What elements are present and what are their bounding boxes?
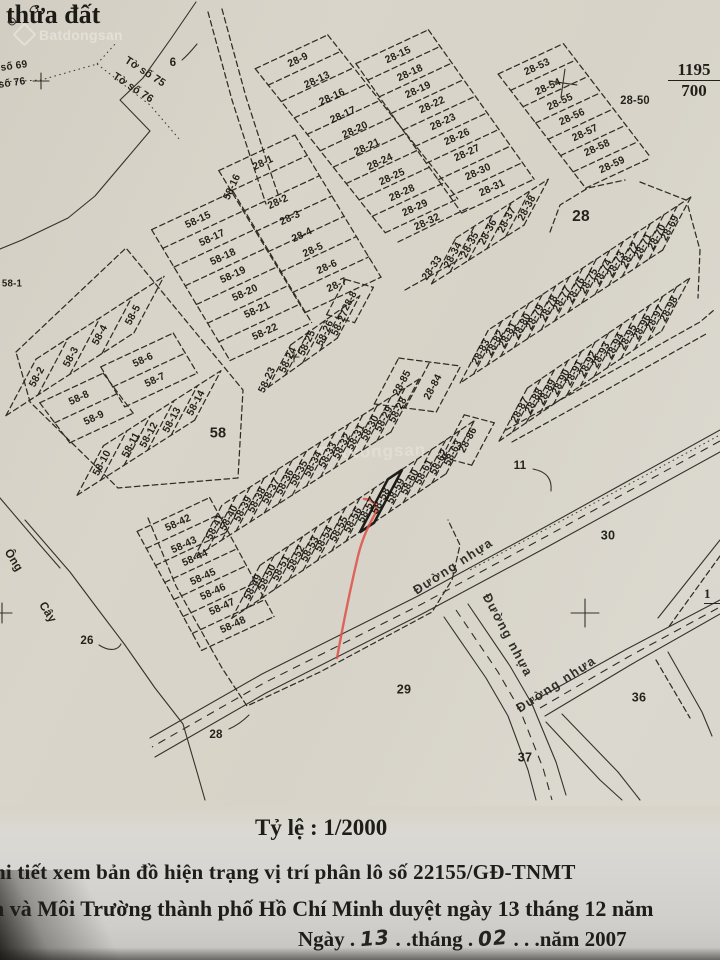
plot-label: 28-35 (458, 230, 481, 259)
plot-label: 28-3 (278, 208, 302, 228)
plot-label: 28-22 (417, 94, 447, 116)
plot-label: 58-1 (2, 279, 22, 290)
plot-label: 58-13 (160, 405, 183, 434)
plot-label: 58-9 (82, 408, 106, 428)
plot-label: 58-4 (90, 323, 111, 347)
plot-label: 28-38 (515, 193, 538, 222)
plot-label: 28-9 (286, 50, 310, 70)
plot-label: 58-19 (218, 264, 248, 286)
date-suffix: . . .năm 2007 (513, 927, 626, 951)
plot-label: 28-27 (452, 142, 482, 164)
map-scale-text: Tỷ lệ : 1/2000 (255, 815, 387, 841)
edge-fraction-partial: 1 (704, 586, 720, 604)
date-mid: . .tháng . (396, 927, 474, 951)
watermark-logo: Batdongsan (16, 26, 123, 43)
plot-label: 58-8 (67, 388, 91, 408)
plot-label: 28-56 (557, 106, 587, 128)
plot-label: 28-50 (620, 95, 650, 107)
plot-label: 58-23 (256, 365, 278, 395)
plot-label: 58-48 (218, 614, 248, 636)
plot-label: Cây (36, 599, 60, 625)
plot-label: 58-27 (329, 308, 351, 338)
plot-label: 6 (170, 55, 177, 69)
plot-label: 28-30 (463, 161, 493, 183)
plot-label: 58-7 (143, 370, 167, 390)
cadastral-map-photo: thửa đất Batdongsan Batdongsan 28-928-13… (0, 0, 720, 960)
sheet-number-fraction: 1195 700 (668, 60, 720, 100)
sheet-fraction-numerator: 1195 (668, 60, 720, 80)
plot-label: 28-23 (428, 111, 458, 133)
plot-label: 28-6 (315, 257, 339, 277)
plot-label: 28-21 (352, 136, 382, 158)
plot-label: 28 (209, 727, 222, 741)
diamond-logo-icon (12, 22, 36, 46)
plot-label: 28-28 (387, 182, 417, 204)
plot-label: 28-20 (340, 119, 370, 141)
date-prefix: Ngày . (298, 927, 355, 951)
plot-label: 29 (397, 682, 411, 697)
watermark-text: Batdongsan (39, 27, 123, 43)
plot-label: 58-12 (137, 420, 160, 449)
plot-label: 58-22 (250, 321, 280, 343)
plot-label: 28 (572, 208, 590, 226)
plot-label: 28-13 (302, 69, 332, 91)
handwritten-day: 13 (359, 925, 391, 952)
plot-label: 28-1 (251, 153, 275, 173)
plot-label: 28-19 (403, 79, 433, 101)
plot-label: 30 (601, 528, 615, 543)
plot-label: 36 (632, 690, 646, 705)
footer-note-line2: n và Môi Trường thành phố Hồ Chí Minh du… (0, 896, 654, 922)
plot-label: 26 (80, 633, 93, 647)
plot-label: 58-5 (123, 303, 144, 327)
plot-label: 58-6 (131, 350, 155, 370)
plot-label: 28-58 (582, 137, 612, 159)
plot-label: 28-98 (657, 294, 680, 323)
plot-label: 28-53 (522, 56, 552, 78)
plot-label: 28-5 (301, 240, 325, 260)
plot-label: 58-10 (90, 448, 113, 477)
plot-label: 28-4 (290, 225, 314, 245)
plot-labels-layer: 28-928-1328-1628-1728-2028-2128-2428-252… (0, 0, 720, 810)
plot-label: 28-33 (419, 253, 444, 282)
plot-label: 28-18 (395, 62, 425, 84)
plot-label: 28-85 (390, 368, 413, 397)
plot-label: 58-21 (242, 299, 272, 321)
footer-note-line1: hi tiết xem bản đồ hiện trạng vị trí phâ… (0, 860, 576, 885)
plot-label: 28-32 (412, 211, 442, 233)
plot-label: 58 (210, 425, 227, 442)
plot-label: 28-2 (266, 192, 290, 212)
plot-label: 58-20 (230, 282, 260, 304)
sheet-fraction-denominator: 700 (668, 80, 720, 101)
plot-label: Ông (2, 546, 27, 574)
plot-label: số 76 (0, 75, 26, 91)
plot-label: 58-24 (277, 345, 299, 375)
footer-date-line: Ngày . 13 . .tháng . 02 . . .năm 2007 (298, 927, 627, 952)
plot-label: 58-14 (184, 388, 207, 417)
plot-label: 37 (518, 750, 532, 765)
plot-label: 58-15 (183, 209, 213, 231)
handwritten-month: 02 (477, 925, 509, 952)
plot-label: 28-59 (597, 154, 627, 176)
plot-label: 58-3 (61, 345, 82, 369)
plot-label: 11 (514, 458, 527, 472)
road-name-label: Đường nhựa (410, 535, 496, 598)
plot-label: 28-31 (477, 177, 507, 199)
plot-label: 58-17 (197, 227, 227, 249)
plot-label: 28-36 (476, 217, 499, 246)
plot-label: 58-2 (27, 365, 48, 389)
plot-label: 28-16 (317, 86, 347, 108)
plot-label: 28-15 (383, 44, 413, 66)
plot-label: 58-16 (221, 172, 243, 202)
plot-label: 28-37 (495, 205, 518, 234)
plot-label: 28-86 (456, 425, 479, 454)
plot-label: số 69 (0, 58, 28, 74)
road-name-label: Đường nhựa (480, 591, 537, 679)
plot-label: 28-84 (421, 372, 444, 401)
plot-label: 28-7 (325, 275, 349, 295)
plot-label: 58-42 (163, 512, 193, 534)
plot-label: 58-18 (208, 246, 238, 268)
